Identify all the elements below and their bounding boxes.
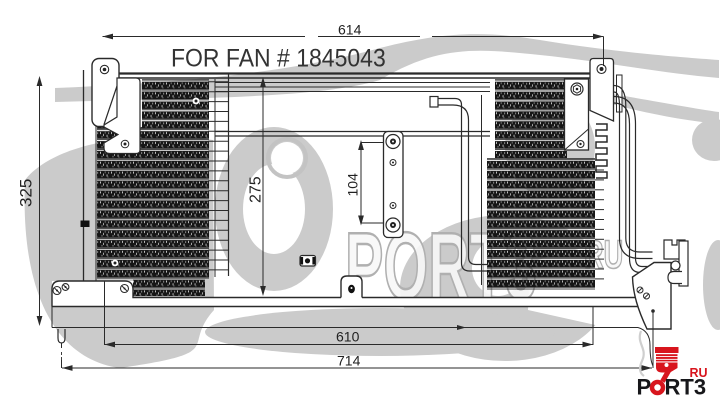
svg-text:275: 275 [248, 176, 265, 203]
svg-text:614: 614 [338, 22, 362, 38]
svg-text:325: 325 [17, 179, 36, 207]
svg-text:104: 104 [345, 173, 361, 197]
svg-text:FOR FAN # 1845043: FOR FAN # 1845043 [171, 45, 386, 73]
svg-text:RU: RU [690, 366, 708, 380]
svg-text:P: P [637, 375, 652, 400]
svg-text:714: 714 [337, 353, 361, 369]
svg-text:610: 610 [336, 329, 360, 345]
